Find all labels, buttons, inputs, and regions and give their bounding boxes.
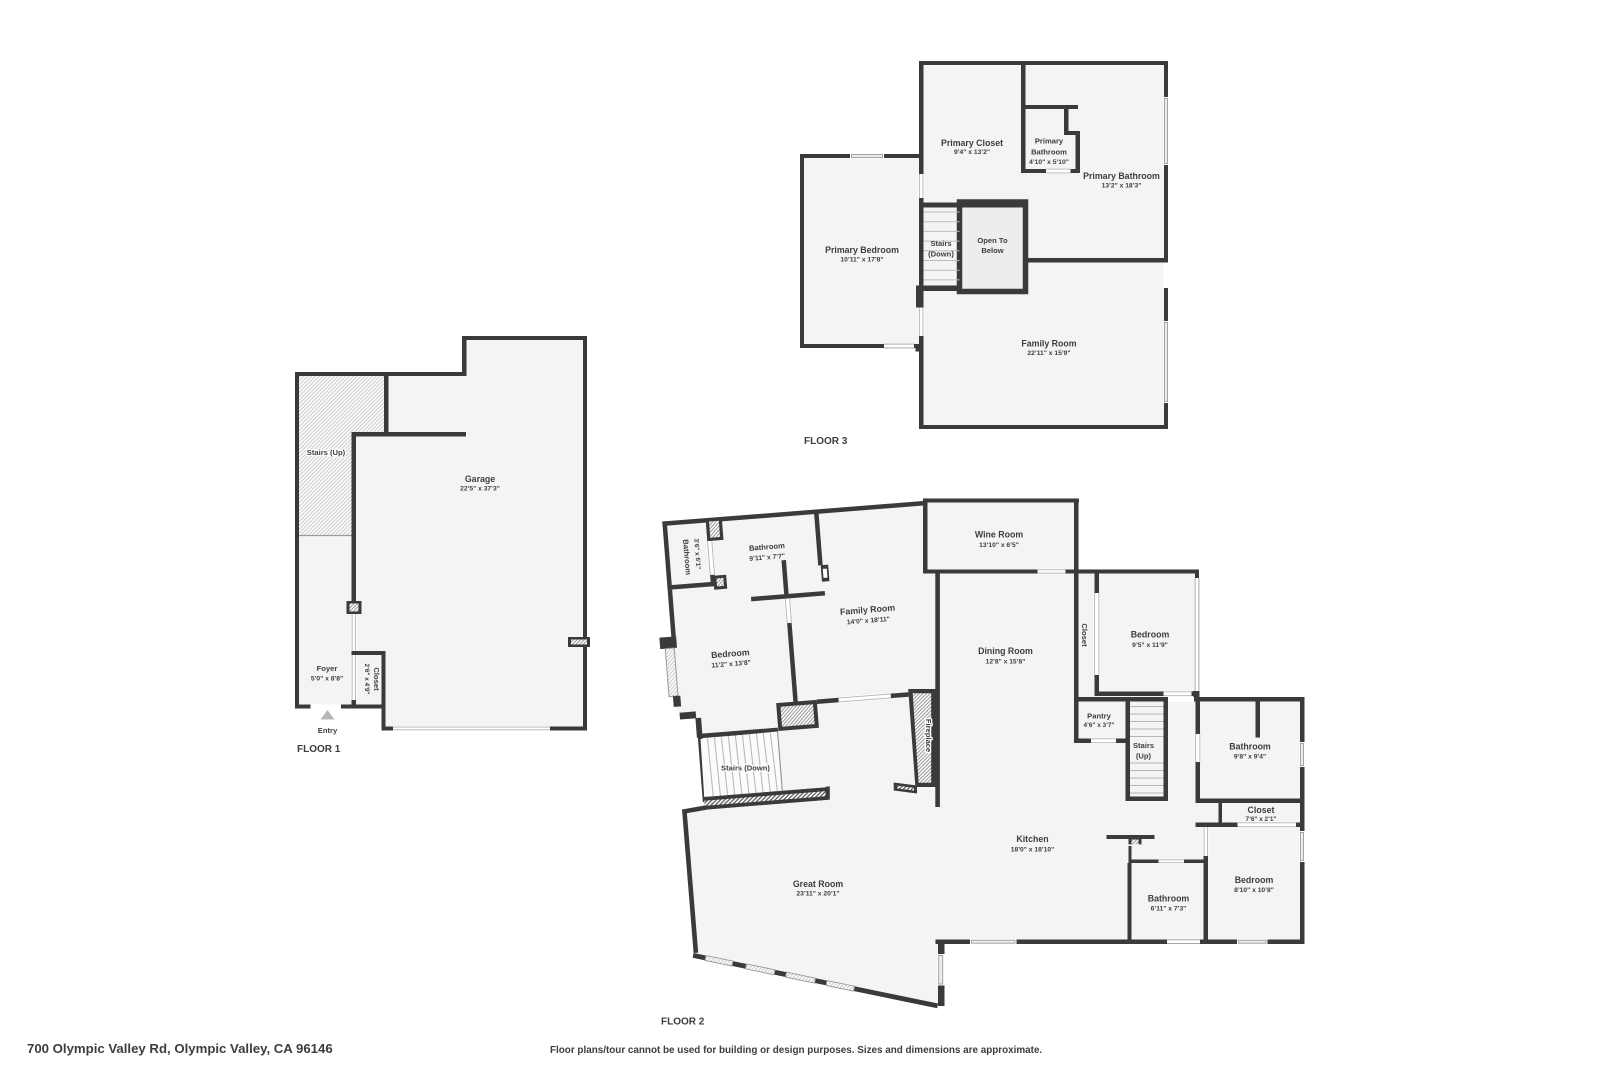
svg-text:Bathroom: Bathroom — [1148, 894, 1190, 904]
svg-text:Closet: Closet — [1080, 623, 1089, 647]
svg-text:18’0" x 18’10": 18’0" x 18’10" — [1011, 847, 1055, 854]
svg-text:Closet: Closet — [1248, 805, 1275, 815]
svg-text:Kitchen: Kitchen — [1016, 834, 1048, 844]
svg-text:Entry: Entry — [318, 726, 338, 735]
svg-text:9’4" x 13’2": 9’4" x 13’2" — [954, 149, 990, 156]
svg-text:Great Room: Great Room — [793, 879, 844, 889]
svg-text:Below: Below — [981, 246, 1003, 255]
svg-text:Primary Bedroom: Primary Bedroom — [825, 245, 899, 255]
svg-text:13’2" x 18’3": 13’2" x 18’3" — [1102, 183, 1142, 190]
svg-text:700 Olympic Valley Rd, Olympic: 700 Olympic Valley Rd, Olympic Valley, C… — [27, 1041, 333, 1056]
svg-text:Primary Bathroom: Primary Bathroom — [1083, 171, 1160, 181]
svg-text:Open To: Open To — [977, 236, 1008, 245]
svg-text:Stairs (Up): Stairs (Up) — [307, 448, 346, 457]
svg-text:8’10" x 10’8": 8’10" x 10’8" — [1234, 887, 1274, 894]
svg-text:22’5" x 37’3": 22’5" x 37’3" — [460, 486, 500, 493]
svg-text:Primary: Primary — [1035, 137, 1064, 146]
svg-text:Bathroom: Bathroom — [1031, 148, 1067, 157]
svg-text:Garage: Garage — [465, 474, 495, 484]
svg-text:12’8" x 15’8": 12’8" x 15’8" — [986, 659, 1026, 666]
svg-text:(Down): (Down) — [928, 250, 954, 259]
svg-text:Bedroom: Bedroom — [1235, 875, 1274, 885]
svg-text:7’6" x 2’1": 7’6" x 2’1" — [1246, 816, 1277, 823]
svg-text:4’10" x 5’10": 4’10" x 5’10" — [1029, 159, 1069, 166]
svg-text:5’0" x 8’8": 5’0" x 8’8" — [311, 676, 343, 683]
svg-text:Floor plans/tour cannot be use: Floor plans/tour cannot be used for buil… — [550, 1045, 1042, 1056]
svg-text:Closet: Closet — [372, 667, 381, 691]
svg-text:Wine Room: Wine Room — [975, 530, 1023, 540]
svg-text:Dining Room: Dining Room — [978, 646, 1033, 656]
svg-text:2’6" x 4’9": 2’6" x 4’9" — [363, 664, 370, 695]
svg-text:Foyer: Foyer — [317, 664, 338, 673]
svg-text:22’11" x 15’9": 22’11" x 15’9" — [1027, 350, 1070, 357]
svg-text:Bedroom: Bedroom — [1131, 630, 1170, 640]
svg-text:(Up): (Up) — [1136, 752, 1152, 761]
svg-text:Pantry: Pantry — [1087, 712, 1111, 721]
svg-text:FLOOR 1: FLOOR 1 — [297, 744, 341, 755]
svg-text:Stairs: Stairs — [930, 239, 951, 248]
svg-text:13’10" x 6’5": 13’10" x 6’5" — [979, 542, 1019, 549]
svg-text:Fireplace: Fireplace — [924, 719, 933, 752]
svg-text:FLOOR 2: FLOOR 2 — [661, 1017, 705, 1028]
svg-text:Stairs (Down): Stairs (Down) — [721, 764, 770, 773]
svg-text:Bathroom: Bathroom — [1229, 742, 1271, 752]
svg-text:9’8" x 9’4": 9’8" x 9’4" — [1234, 754, 1266, 761]
svg-text:9’5" x 11’9": 9’5" x 11’9" — [1132, 642, 1168, 649]
svg-text:FLOOR 3: FLOOR 3 — [804, 436, 848, 447]
svg-text:Family Room: Family Room — [1021, 339, 1076, 349]
svg-text:Primary Closet: Primary Closet — [941, 138, 1003, 148]
svg-text:4’6" x 3’7": 4’6" x 3’7" — [1084, 722, 1115, 729]
svg-text:Stairs: Stairs — [1133, 741, 1154, 750]
svg-text:23’11" x 20’1": 23’11" x 20’1" — [796, 891, 839, 898]
svg-text:6’11" x 7’3": 6’11" x 7’3" — [1151, 906, 1187, 913]
svg-text:10’11" x 17’8": 10’11" x 17’8" — [840, 257, 883, 264]
